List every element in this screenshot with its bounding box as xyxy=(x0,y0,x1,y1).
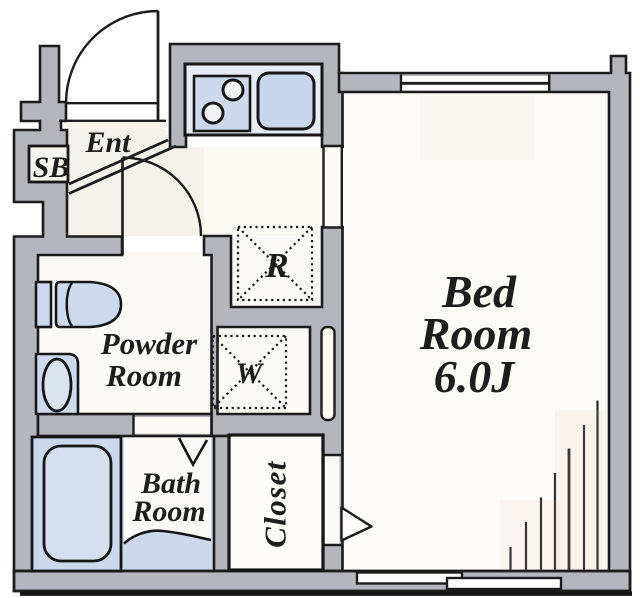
svg-text:W: W xyxy=(236,357,265,390)
svg-text:Ent: Ent xyxy=(84,126,132,159)
svg-text:Powder: Powder xyxy=(100,326,198,361)
svg-text:6.0J: 6.0J xyxy=(434,351,517,402)
svg-text:Room: Room xyxy=(105,358,182,393)
svg-text:Closet: Closet xyxy=(258,460,293,548)
svg-text:SB: SB xyxy=(33,151,70,184)
svg-text:R: R xyxy=(264,246,288,285)
svg-text:Room: Room xyxy=(131,495,205,528)
